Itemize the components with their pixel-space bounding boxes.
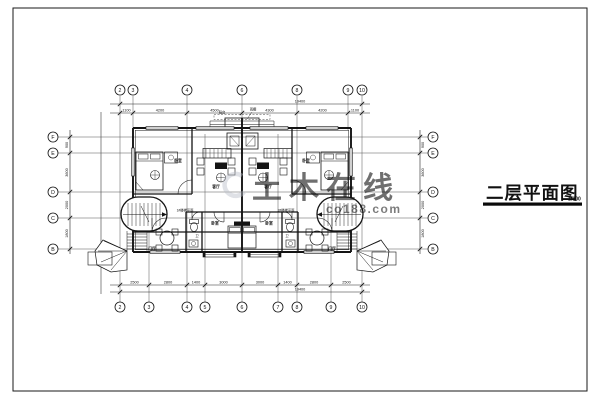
axis-label: 10 (359, 88, 365, 94)
axis-label: 3 (132, 88, 135, 94)
room-label-hall: 门厅 (328, 246, 336, 251)
dim-label: 1800 (421, 229, 425, 237)
dimension-top: 1100 4200 4500 4300 4200 1100 19400 2 3 … (110, 85, 370, 115)
axis-label: D (51, 190, 55, 196)
axis-label: 3 (148, 305, 151, 311)
title-block: 二层平面图 1:100 (483, 183, 582, 206)
dim-label: 3000 (219, 281, 227, 285)
dim-label: 2000 (65, 201, 69, 209)
axis-label: B (51, 247, 55, 253)
dim-label: 1400 (192, 281, 200, 285)
watermark: 土木在线 co188.com (225, 172, 402, 216)
dim-label: 3000 (256, 281, 264, 285)
dim-label: 2800 (310, 281, 318, 285)
room-label-hall: 门厅 (148, 246, 156, 251)
room-label-balcony: 阳台 (219, 110, 226, 115)
drawing-scale: 1:100 (568, 197, 581, 203)
dim-label: 3600 (421, 168, 425, 176)
axis-label: B (431, 247, 435, 253)
dim-label: 1100 (122, 109, 130, 113)
axis-label: C (51, 216, 55, 222)
dim-label: 1400 (283, 281, 291, 285)
room-label-bath: 卫 (195, 234, 199, 238)
axis-label: 9 (347, 88, 350, 94)
dim-overall-top: 19400 (295, 100, 306, 104)
axis-label: 4 (186, 88, 189, 94)
dim-label: 2500 (342, 281, 350, 285)
room-label-bedroom: 卧室 (265, 221, 273, 226)
dim-label: 4200 (156, 109, 164, 113)
room-label-bath: 卫 (285, 234, 289, 238)
room-label-bedroom: 卧室 (174, 158, 182, 163)
dim-label: 1100 (351, 109, 359, 113)
axis-label: F (431, 135, 434, 141)
axis-label: 5 (204, 305, 207, 311)
foyer (227, 133, 258, 149)
axis-label: 9 (330, 305, 333, 311)
dim-label: 2500 (130, 281, 138, 285)
room-label-bedroom: 卧室 (302, 158, 310, 163)
axis-label: 6 (241, 305, 244, 311)
dim-label: 1800 (65, 229, 69, 237)
stair-label-left: 1#楼梯平面 (177, 208, 195, 213)
dim-label: 4500 (210, 109, 218, 113)
dim-label: 4300 (265, 109, 273, 113)
cad-floor-plan: 1100 4200 4500 4300 4200 1100 19400 2 3 … (0, 0, 600, 400)
room-label-living: 客厅 (211, 184, 220, 189)
room-label-canopy: 雨棚 (250, 107, 257, 112)
dim-label: 900 (421, 142, 425, 148)
axis-label: D (431, 190, 435, 196)
axis-label: F (51, 135, 54, 141)
axis-label: 8 (296, 88, 299, 94)
dim-label: 2000 (421, 201, 425, 209)
axis-label: 6 (241, 88, 244, 94)
axis-label: C (431, 216, 435, 222)
axis-label: 4 (186, 305, 189, 311)
dim-label: 3600 (65, 168, 69, 176)
dim-label: 4200 (318, 109, 326, 113)
dim-overall-bottom: 19400 (295, 288, 306, 292)
dim-label: 900 (65, 142, 69, 148)
axis-label: 10 (359, 305, 365, 311)
axis-label: E (51, 151, 55, 157)
title-underline (483, 203, 582, 206)
drawing-sheet: 1100 4200 4500 4300 4200 1100 19400 2 3 … (0, 0, 600, 400)
watermark-brand: 土木在线 (252, 172, 400, 205)
dim-ticks-bottom (118, 283, 364, 294)
axis-label: 2 (119, 305, 122, 311)
axis-label: 7 (277, 305, 280, 311)
drawing-title: 二层平面图 (486, 183, 579, 203)
stair-label-right: 2#楼梯平面 (278, 208, 296, 213)
axis-label: 8 (296, 305, 299, 311)
axis-label: E (431, 151, 435, 157)
dim-label: 2800 (164, 281, 172, 285)
watermark-domain: co188.com (326, 202, 402, 216)
axis-label: 2 (119, 88, 122, 94)
room-label-bedroom: 卧室 (211, 221, 219, 226)
